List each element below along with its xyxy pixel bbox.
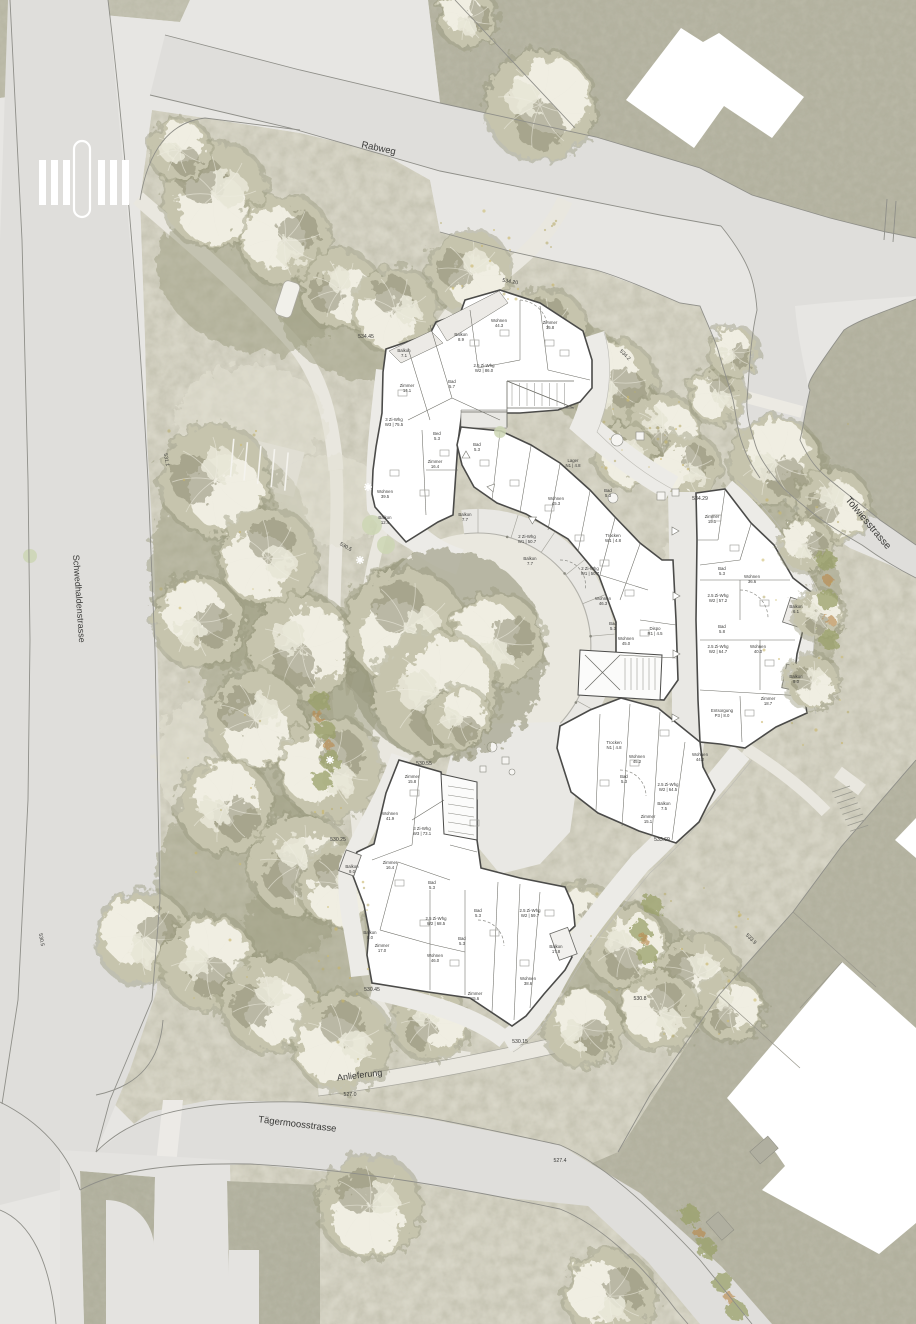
svg-text:W2 | 68.5: W2 | 68.5 (427, 921, 446, 926)
svg-text:5.3: 5.3 (621, 779, 628, 784)
svg-text:W1 | 4.8: W1 | 4.8 (605, 538, 622, 543)
svg-text:P3 | 8.0: P3 | 8.0 (715, 713, 730, 718)
svg-text:40.0: 40.0 (754, 649, 763, 654)
svg-text:15.6: 15.6 (471, 996, 480, 1001)
svg-text:527.0: 527.0 (344, 1092, 357, 1098)
svg-text:14.1: 14.1 (403, 388, 412, 393)
svg-text:46.3: 46.3 (599, 601, 608, 606)
svg-text:5.3: 5.3 (474, 447, 481, 452)
svg-text:533.69: 533.69 (654, 837, 670, 843)
svg-text:38.6: 38.6 (524, 981, 533, 986)
svg-text:W3 | 73.1: W3 | 73.1 (413, 831, 432, 836)
svg-text:15.8: 15.8 (546, 325, 555, 330)
svg-text:5.3: 5.3 (719, 571, 726, 576)
svg-text:12.4: 12.4 (381, 520, 390, 525)
svg-text:8.0: 8.0 (367, 935, 374, 940)
svg-text:W2 | 64.7: W2 | 64.7 (709, 649, 728, 654)
svg-text:8.9: 8.9 (458, 337, 465, 342)
svg-text:36.6: 36.6 (748, 579, 757, 584)
svg-text:527.4: 527.4 (554, 1158, 567, 1164)
svg-text:530.15: 530.15 (512, 1039, 528, 1045)
svg-text:45.2: 45.2 (633, 759, 642, 764)
svg-text:46.0: 46.0 (431, 958, 440, 963)
svg-text:44.3: 44.3 (495, 323, 504, 328)
svg-text:18.7: 18.7 (764, 701, 773, 706)
svg-text:W2 | 64.5: W2 | 64.5 (659, 787, 678, 792)
svg-text:534.29: 534.29 (692, 496, 708, 502)
svg-text:15.1: 15.1 (644, 819, 653, 824)
svg-text:17.0: 17.0 (378, 948, 387, 953)
svg-text:5.3: 5.3 (429, 885, 436, 890)
svg-text:5.3: 5.3 (475, 913, 482, 918)
svg-text:W2 | 57.2: W2 | 57.2 (709, 598, 728, 603)
svg-text:5.3: 5.3 (610, 626, 617, 631)
svg-text:W2 | 59.7: W2 | 59.7 (521, 913, 540, 918)
svg-text:5.3: 5.3 (605, 493, 612, 498)
svg-text:41.9: 41.9 (386, 816, 395, 821)
svg-text:17.8: 17.8 (552, 949, 561, 954)
svg-text:15.8: 15.8 (408, 779, 417, 784)
svg-text:44.2: 44.2 (696, 757, 705, 762)
svg-text:45.3: 45.3 (552, 501, 561, 506)
svg-text:15.1: 15.1 (708, 519, 717, 524)
svg-text:5.8: 5.8 (719, 629, 726, 634)
svg-text:W2 | 86.0: W2 | 86.0 (475, 368, 494, 373)
svg-text:16.4: 16.4 (386, 865, 395, 870)
svg-text:N1 | 4.8: N1 | 4.8 (607, 745, 623, 750)
svg-text:530.45: 530.45 (364, 987, 380, 993)
svg-text:W1 | 50.7: W1 | 50.7 (518, 539, 537, 544)
svg-text:534.45: 534.45 (358, 334, 374, 340)
svg-text:5.3: 5.3 (459, 941, 466, 946)
svg-text:7.7: 7.7 (527, 561, 534, 566)
svg-text:W1 | 50.7: W1 | 50.7 (581, 571, 600, 576)
svg-text:7.7: 7.7 (462, 517, 469, 522)
svg-text:7.1: 7.1 (401, 353, 408, 358)
svg-text:16.4: 16.4 (431, 464, 440, 469)
svg-text:N1 | 4.8: N1 | 4.8 (566, 463, 582, 468)
svg-text:W3 | 75.5: W3 | 75.5 (385, 422, 404, 427)
svg-text:530.55: 530.55 (416, 761, 432, 767)
svg-text:6.1: 6.1 (793, 609, 800, 614)
svg-text:45.0: 45.0 (622, 641, 631, 646)
svg-text:9.0: 9.0 (349, 869, 356, 874)
svg-text:5.7: 5.7 (449, 384, 456, 389)
svg-text:R1 | 4.5: R1 | 4.5 (648, 631, 664, 636)
svg-text:39.5: 39.5 (381, 494, 390, 499)
svg-text:530.8: 530.8 (634, 996, 647, 1002)
svg-text:9.0: 9.0 (793, 679, 800, 684)
svg-text:530.25: 530.25 (330, 837, 346, 843)
svg-text:5.3: 5.3 (434, 436, 441, 441)
svg-text:7.5: 7.5 (661, 806, 668, 811)
